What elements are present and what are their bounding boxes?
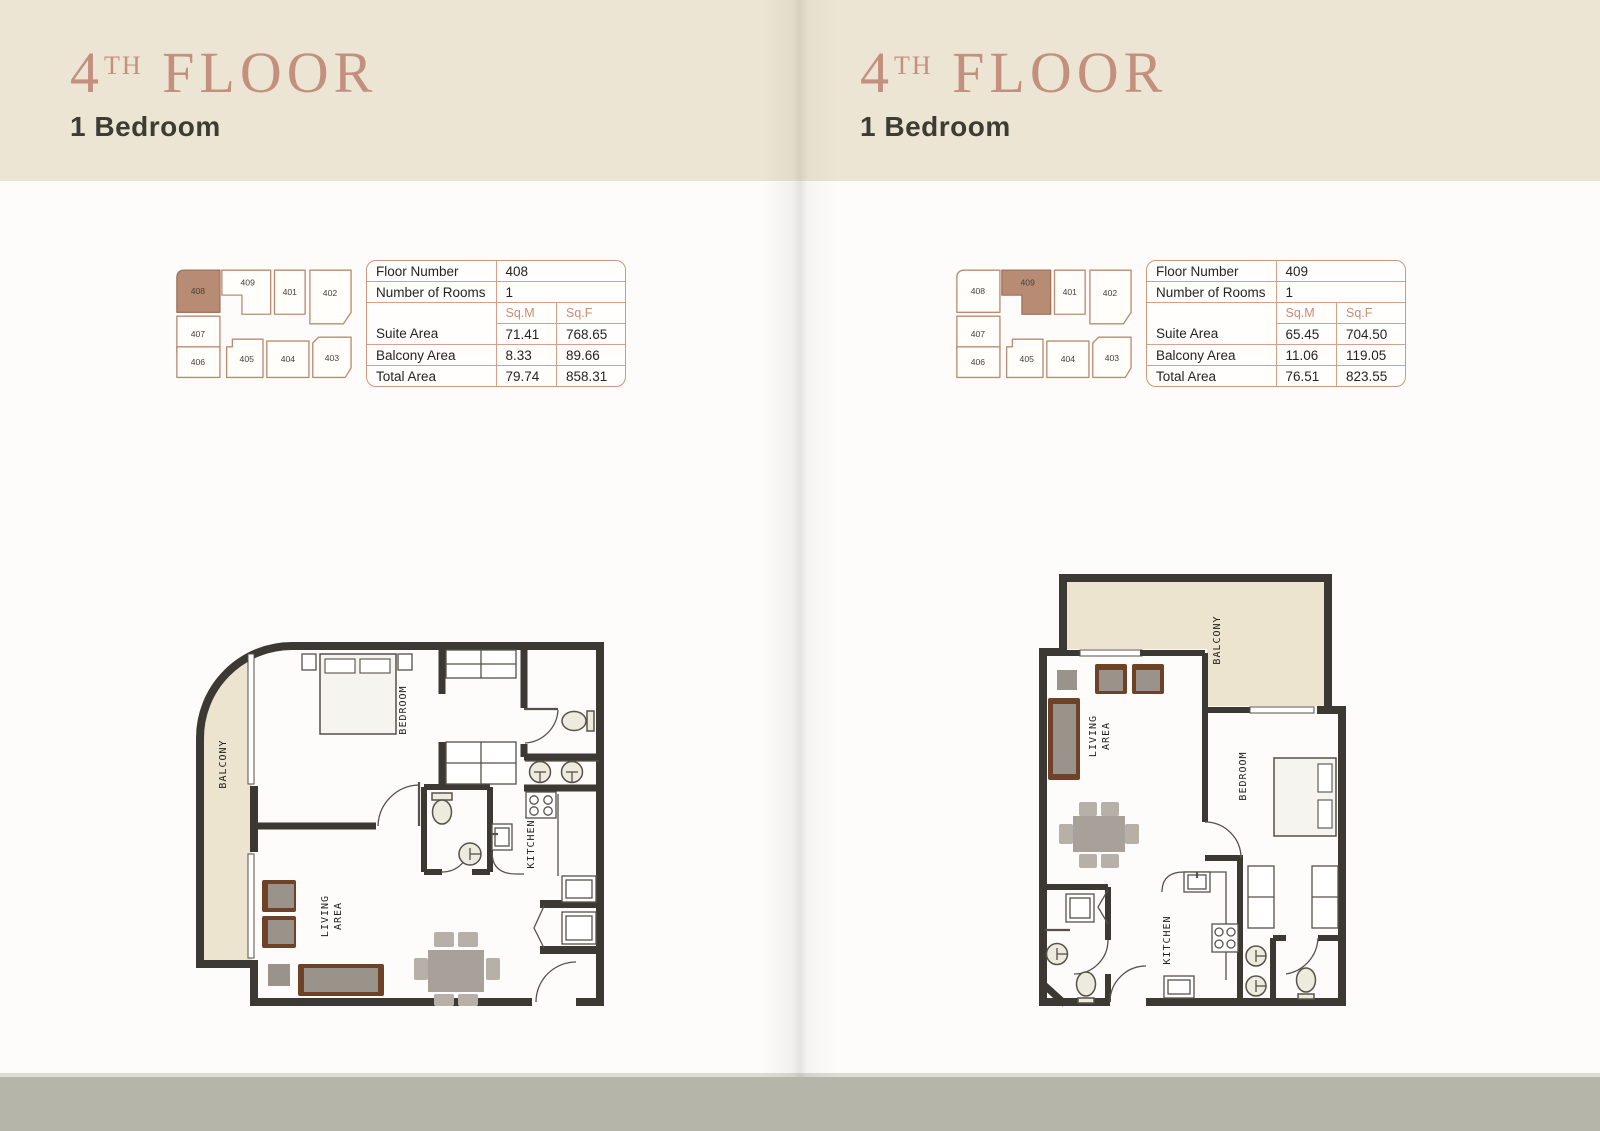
table-row: Number of Rooms 1	[1147, 282, 1405, 303]
rooms-label: Number of Rooms	[367, 282, 496, 303]
room-label-living-2: AREA	[333, 902, 344, 930]
bedroom-window	[1250, 707, 1314, 713]
rooms-label: Number of Rooms	[1147, 282, 1276, 303]
armchair	[262, 916, 296, 948]
table-row: Suite Area Sq.M Sq.F	[1147, 303, 1405, 324]
total-area-sqf: 858.31	[556, 366, 625, 387]
floor-number-label: Floor Number	[1147, 261, 1276, 282]
keyplan-label-406: 406	[971, 357, 986, 367]
suite-area-sqf: 768.65	[556, 324, 625, 345]
page-title: 4TH FLOOR	[860, 34, 1167, 105]
door-arc	[1205, 822, 1241, 858]
side-table	[1057, 670, 1077, 690]
dining-set	[414, 932, 500, 1006]
keyplan-label-404: 404	[1061, 354, 1076, 364]
appliance	[1164, 976, 1194, 998]
balcony-window	[248, 654, 254, 784]
ordinal-suffix: TH	[894, 51, 933, 80]
toilet-icon	[1077, 972, 1096, 1003]
door-arc	[525, 710, 558, 743]
area-table-409: Floor Number 409 Number of Rooms 1 Suite…	[1146, 260, 1406, 387]
total-area-sqm: 79.74	[496, 366, 556, 387]
total-area-sqm: 76.51	[1276, 366, 1336, 387]
appliance	[562, 876, 596, 902]
floor-number-label: Floor Number	[367, 261, 496, 282]
stove-icon	[526, 792, 556, 818]
floor-number-value: 409	[1276, 261, 1405, 282]
bed-pillow	[1318, 764, 1332, 792]
room-label-balcony: BALCONY	[218, 739, 229, 788]
keyplan-label-407: 407	[971, 329, 986, 339]
page-subtitle: 1 Bedroom	[70, 111, 377, 143]
keyplan-label-409: 409	[240, 278, 255, 288]
rooms-value: 1	[1276, 282, 1405, 303]
suite-area-label: Suite Area	[367, 303, 496, 345]
sink-icon	[1246, 946, 1266, 966]
balcony-area-sqf: 89.66	[556, 345, 625, 366]
room-label-kitchen: KITCHEN	[526, 819, 537, 868]
door-arc	[378, 785, 419, 826]
floor-plan-409-svg: BALCONY BEDROOM LIVING AREA KITCHEN	[1012, 560, 1348, 1010]
room-label-balcony: BALCONY	[1212, 615, 1223, 664]
balcony-area-sqf: 119.05	[1336, 345, 1405, 366]
balcony-area-sqm: 8.33	[496, 345, 556, 366]
table-row: Suite Area Sq.M Sq.F	[367, 303, 625, 324]
balcony-window	[1080, 650, 1142, 656]
ordinal-suffix: TH	[104, 51, 143, 80]
keyplan-409-svg: 408 409 401 402 407 406 405 404 403	[947, 253, 1139, 387]
kitchen-sink-icon	[492, 824, 512, 850]
room-label-bedroom: BEDROOM	[398, 685, 409, 734]
suite-area-sqm: 71.41	[496, 324, 556, 345]
table-row: Balcony Area 11.06 119.05	[1147, 345, 1405, 366]
keyplan-label-409: 409	[1020, 278, 1035, 288]
sqm-header: Sq.M	[1276, 303, 1336, 324]
left-page-header: 4TH FLOOR 1 Bedroom	[70, 34, 377, 143]
room-label-bedroom: BEDROOM	[1238, 751, 1249, 800]
basin-icon	[459, 843, 481, 865]
stove-icon	[1212, 924, 1238, 952]
total-area-label: Total Area	[1147, 366, 1276, 387]
room-label-living-1: LIVING	[1088, 715, 1099, 757]
door-arc	[1074, 940, 1108, 974]
keyplan-label-405: 405	[1020, 354, 1035, 364]
page-subtitle: 1 Bedroom	[860, 111, 1167, 143]
sqf-header: Sq.F	[556, 303, 625, 324]
keyplan-408: 408 409 401 402 407 406 405 404 403	[167, 253, 359, 387]
keyplan-label-403: 403	[1105, 353, 1120, 363]
keyplan-label-408: 408	[971, 286, 986, 296]
table-row: Floor Number 408	[367, 261, 625, 282]
toilet-icon	[562, 711, 594, 731]
appliance	[562, 912, 596, 944]
right-page-header: 4TH FLOOR 1 Bedroom	[860, 34, 1167, 143]
sink-icon	[530, 762, 551, 784]
kitchen-sink-icon	[1184, 872, 1210, 892]
keyplan-label-404: 404	[281, 354, 296, 364]
armchair	[1095, 664, 1127, 694]
bottom-band	[0, 1077, 1600, 1131]
table-row: Number of Rooms 1	[367, 282, 625, 303]
armchair	[262, 880, 296, 912]
bed-pillow	[1318, 800, 1332, 828]
nightstand	[302, 654, 316, 670]
table-row: Total Area 79.74 858.31	[367, 366, 625, 387]
dining-set	[1059, 802, 1139, 868]
table-row: Floor Number 409	[1147, 261, 1405, 282]
sqf-header: Sq.F	[1336, 303, 1405, 324]
entrance-door-arc	[536, 962, 576, 1002]
keyplan-label-405: 405	[240, 354, 255, 364]
balcony-window	[248, 854, 254, 958]
total-area-label: Total Area	[367, 366, 496, 387]
page-title: 4TH FLOOR	[70, 34, 377, 105]
balcony-area-sqm: 11.06	[1276, 345, 1336, 366]
sofa	[298, 964, 384, 996]
floor-plan-408-svg: BALCONY BEDROOM LIVING AREA KITCHEN	[188, 614, 612, 1010]
floor-plan-408: BALCONY BEDROOM LIVING AREA KITCHEN	[188, 614, 612, 1010]
suite-area-sqm: 65.45	[1276, 324, 1336, 345]
keyplan-408-svg: 408 409 401 402 407 406 405 404 403	[167, 253, 359, 387]
keyplan-label-406: 406	[191, 357, 206, 367]
floor-plan-409: BALCONY BEDROOM LIVING AREA KITCHEN	[1012, 560, 1348, 1010]
sink-icon	[1246, 976, 1266, 996]
basin-icon	[1047, 944, 1069, 965]
rooms-value: 1	[496, 282, 625, 303]
keyplan-label-401: 401	[283, 287, 298, 297]
bed-pillow	[360, 659, 390, 673]
total-area-sqf: 823.55	[1336, 366, 1405, 387]
room-label-living-1: LIVING	[320, 895, 331, 937]
toilet-icon	[432, 793, 452, 824]
armchair	[1132, 664, 1164, 694]
brochure-page: 4TH FLOOR 1 Bedroom 4TH FLOOR 1 Bedroom …	[0, 0, 1600, 1131]
washer-closet	[1045, 890, 1108, 930]
keyplan-label-403: 403	[325, 353, 340, 363]
keyplan-label-408: 408	[191, 286, 206, 296]
sofa	[1048, 698, 1080, 780]
balcony-area-label: Balcony Area	[367, 345, 496, 366]
keyplan-label-402: 402	[1103, 288, 1118, 298]
entrance-door-arc	[1110, 966, 1146, 1002]
table-row: Balcony Area 8.33 89.66	[367, 345, 625, 366]
page-fold-gutter	[762, 0, 838, 1077]
floor-number-value: 408	[496, 261, 625, 282]
bed-pillow	[325, 659, 355, 673]
room-label-living-2: AREA	[1101, 722, 1112, 750]
suite-area-label: Suite Area	[1147, 303, 1276, 345]
area-table-408: Floor Number 408 Number of Rooms 1 Suite…	[366, 260, 626, 387]
keyplan-label-401: 401	[1063, 287, 1078, 297]
table-row: Total Area 76.51 823.55	[1147, 366, 1405, 387]
keyplan-409: 408 409 401 402 407 406 405 404 403	[947, 253, 1139, 387]
counter-edge	[492, 852, 524, 874]
toilet-icon	[1297, 968, 1316, 999]
keyplan-label-402: 402	[323, 288, 338, 298]
wardrobe	[1248, 866, 1338, 928]
keyplan-label-407: 407	[191, 329, 206, 339]
side-table	[268, 964, 290, 986]
nightstand	[398, 654, 412, 670]
suite-area-sqf: 704.50	[1336, 324, 1405, 345]
sink-icon	[562, 762, 583, 784]
sqm-header: Sq.M	[496, 303, 556, 324]
balcony-area-label: Balcony Area	[1147, 345, 1276, 366]
closet-folding-door	[534, 906, 544, 948]
room-label-kitchen: KITCHEN	[1162, 915, 1173, 964]
wardrobe	[446, 650, 516, 784]
